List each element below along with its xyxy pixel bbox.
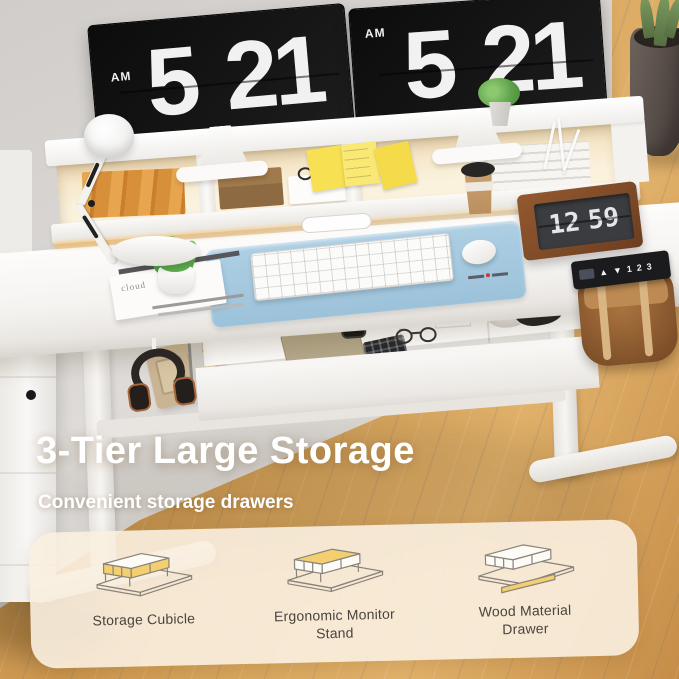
coffee-cup: [461, 161, 498, 217]
monitor-stand-icon: [277, 537, 390, 602]
lamp-hinge: [88, 200, 95, 207]
headphones: [124, 343, 202, 414]
page-subtitle: Convenient storage drawers: [38, 492, 294, 514]
cup-band: [465, 181, 493, 191]
headphone-earcup: [172, 376, 198, 407]
logo-bar: [492, 272, 508, 277]
storage-cubicle-icon: [86, 541, 199, 606]
cabinet-knob: [26, 390, 36, 400]
feature-label: Wood Material Drawer: [464, 600, 587, 639]
desk-lamp-base: [112, 236, 200, 266]
feature-storage-cubicle: Storage Cubicle: [48, 540, 239, 660]
feature-label: Storage Cubicle: [92, 609, 195, 630]
shelf-end-cap: [611, 120, 650, 184]
clock-minute: 21: [221, 21, 326, 125]
book-cover-text: cloud: [120, 279, 146, 293]
desk-lamp-head: [84, 114, 134, 158]
control-display: [579, 268, 595, 280]
control-preset-2: 2: [636, 263, 642, 273]
control-preset-3: 3: [646, 262, 652, 272]
product-image: AM 5 21 AM 5 21: [0, 0, 679, 679]
feature-wood-drawer: Wood Material Drawer: [429, 532, 620, 652]
logo-bar: [468, 274, 484, 279]
clock-hour: 5: [400, 16, 455, 115]
logo-dot: [486, 273, 490, 277]
page-title: 3-Tier Large Storage: [36, 430, 415, 473]
headphone-earcup: [126, 382, 152, 413]
clock-hour: 5: [143, 32, 200, 132]
control-button-down: ▼: [612, 265, 622, 275]
cabinet-drawer-seam: [0, 376, 56, 378]
control-preset-1: 1: [626, 264, 632, 274]
wood-drawer-icon: [467, 532, 580, 597]
control-button-up: ▲: [599, 267, 609, 277]
feature-monitor-stand: Ergonomic Monitor Stand: [238, 536, 429, 656]
feature-panel: Storage Cubicle Ergonomic Monitor Stand: [29, 519, 640, 669]
feature-label: Ergonomic Monitor Stand: [264, 604, 405, 644]
